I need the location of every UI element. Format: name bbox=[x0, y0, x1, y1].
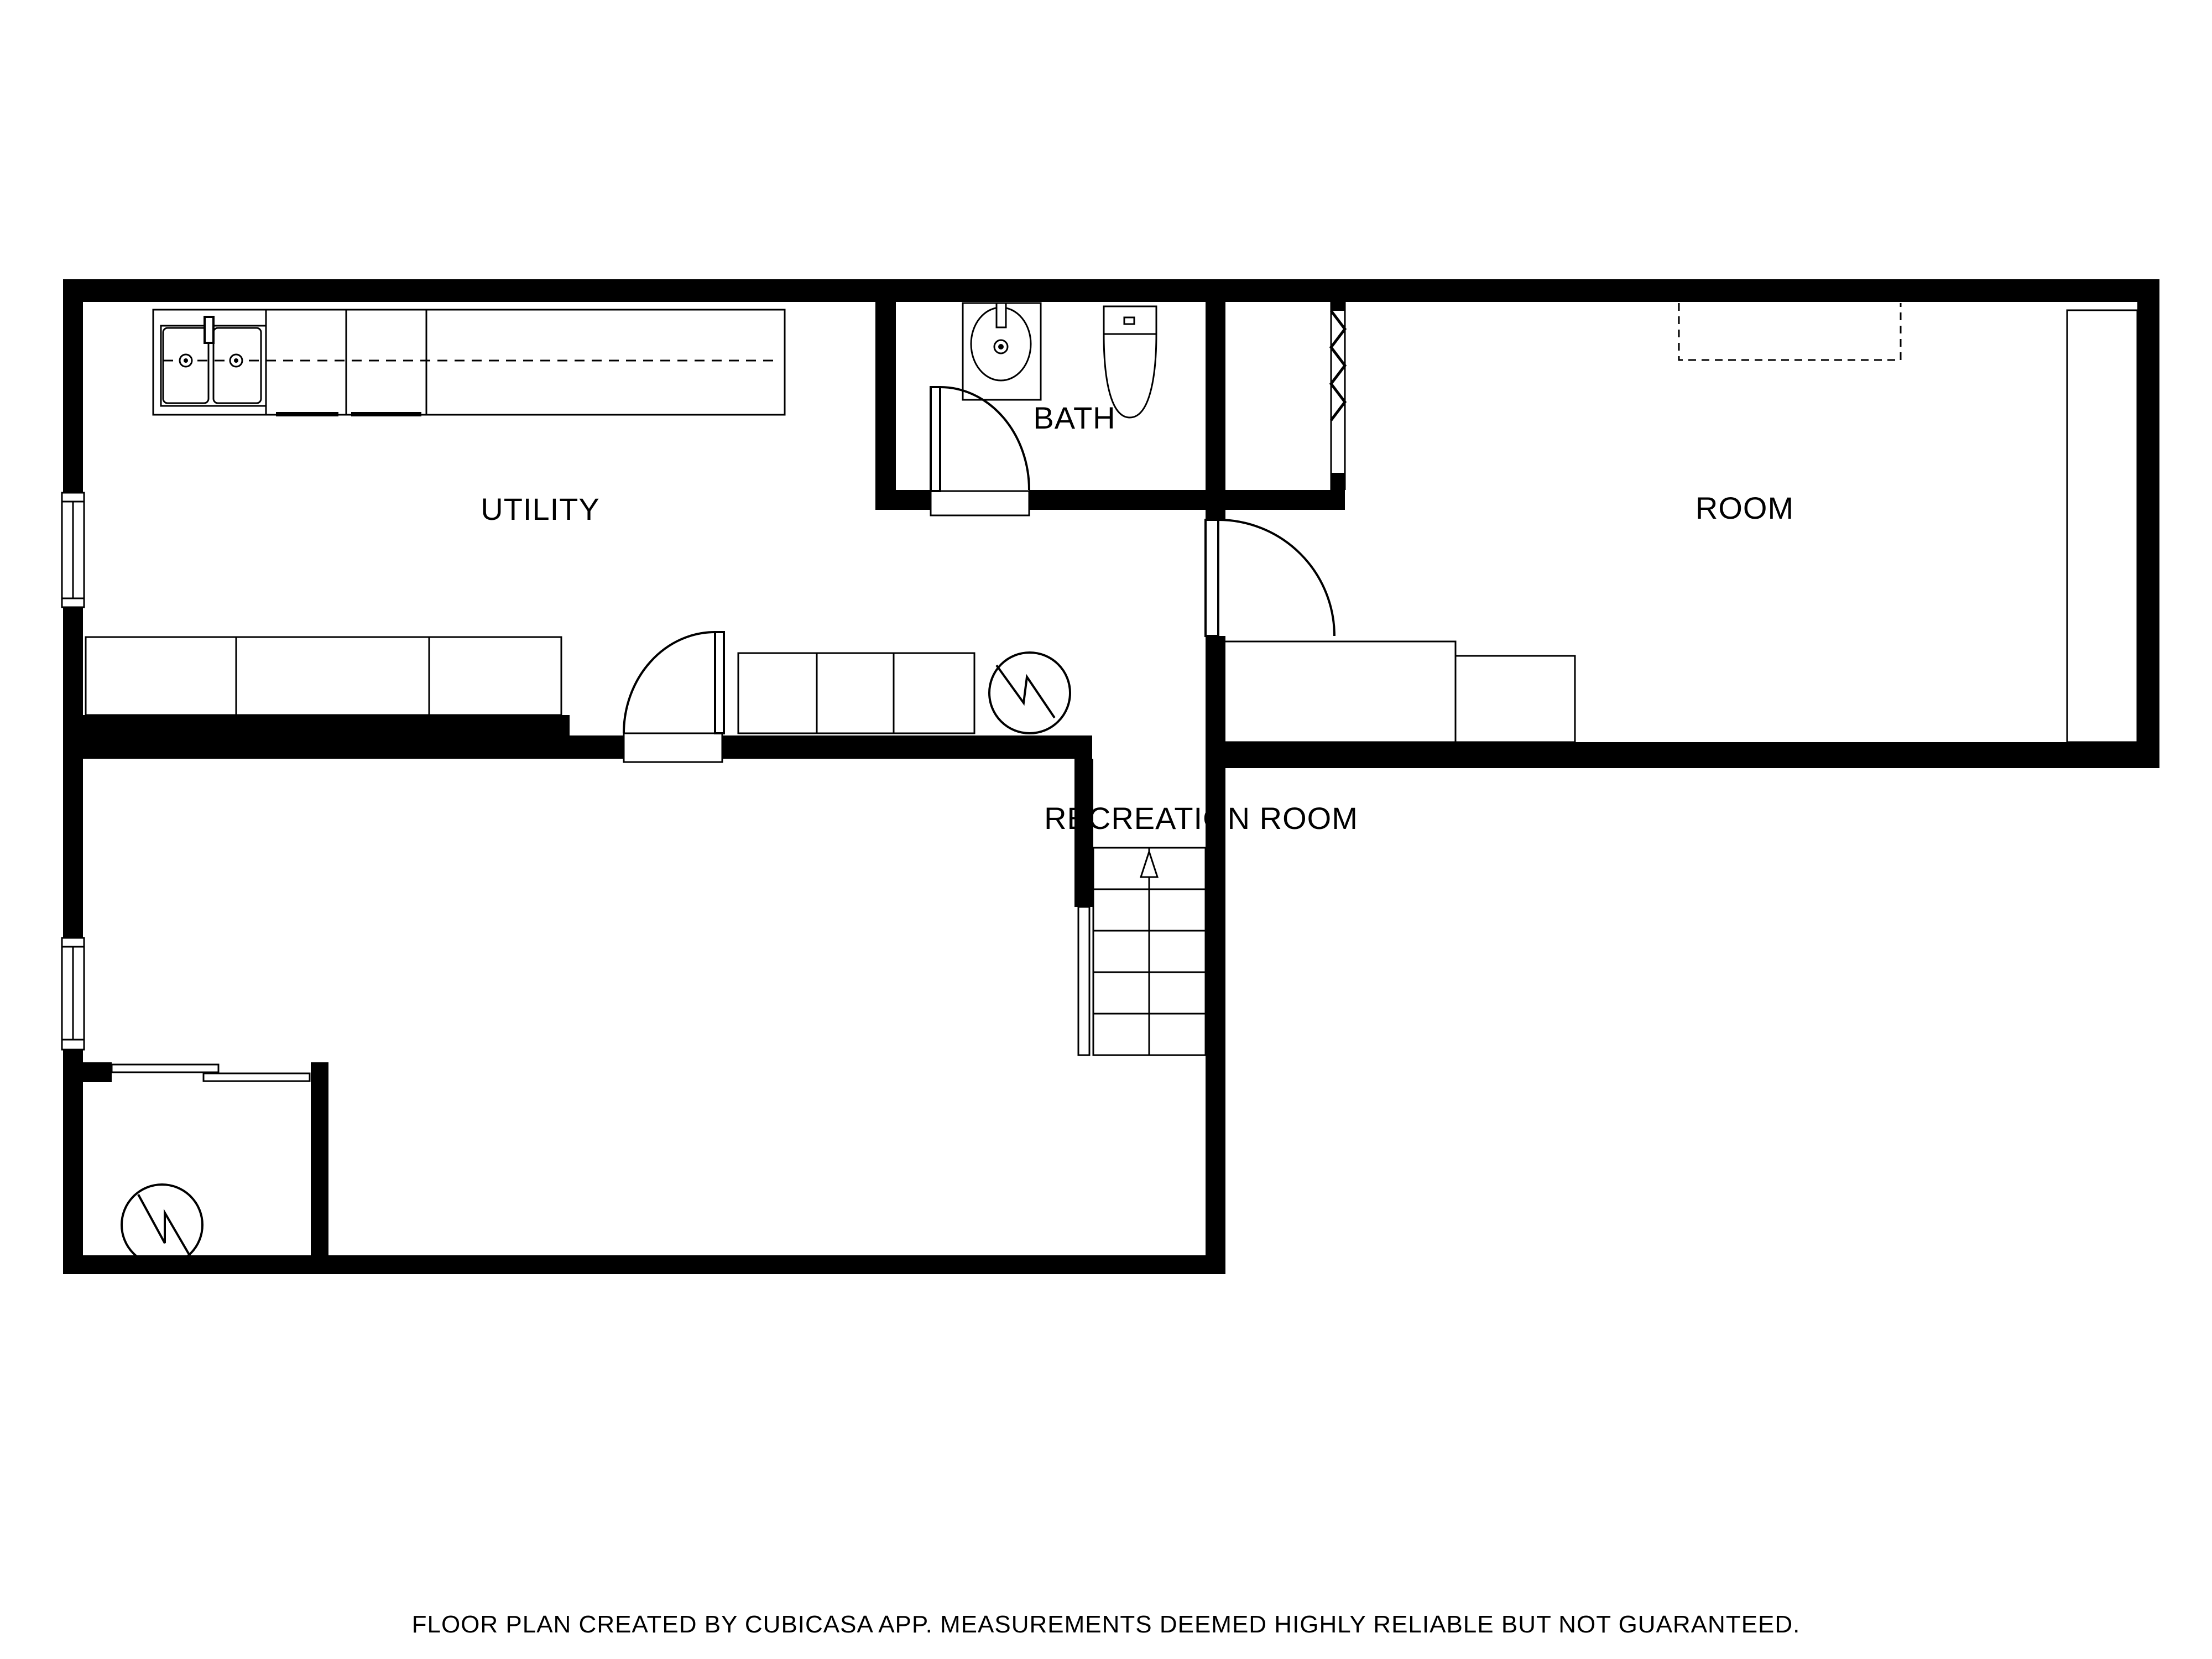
wall-recreation-bottom bbox=[63, 1255, 1225, 1274]
wall-closet-right bbox=[311, 1062, 328, 1255]
wall-mid-vertical-lower bbox=[1206, 636, 1225, 1274]
caption: FLOOR PLAN CREATED BY CUBICASA APP. MEAS… bbox=[412, 1611, 1801, 1638]
wall-left bbox=[63, 279, 83, 1274]
wall-bath-bottom-right bbox=[1029, 490, 1345, 510]
wall-utility-bottom-mid bbox=[570, 735, 624, 759]
wall-mid-vertical-upper bbox=[1206, 302, 1225, 520]
window-icon bbox=[62, 493, 84, 607]
wall-bath-left bbox=[875, 302, 896, 490]
room-label: ROOM bbox=[1695, 491, 1794, 525]
counter-tick-left bbox=[276, 412, 338, 416]
wall-room-bottom bbox=[1225, 742, 2159, 768]
closet-water-heater-icon bbox=[122, 1185, 202, 1265]
window-icon bbox=[62, 938, 84, 1050]
wall-closet-top bbox=[83, 1062, 112, 1082]
counter-tick-right bbox=[351, 412, 421, 416]
bed bbox=[1219, 641, 1455, 742]
bath-sink-icon bbox=[963, 303, 1041, 400]
floor-plan-canvas: UTILITY BATH ROOM RECREATION ROOM bbox=[0, 0, 2212, 1659]
utility-cabinet-row bbox=[738, 653, 974, 733]
water-heater-icon bbox=[989, 653, 1070, 733]
wall-right bbox=[2137, 279, 2159, 768]
utility-label: UTILITY bbox=[481, 492, 599, 526]
floor-plan-page: UTILITY BATH ROOM RECREATION ROOM bbox=[0, 0, 2212, 1659]
nightstand bbox=[1455, 656, 1575, 742]
room-side-counter bbox=[2067, 310, 2137, 742]
wall-stair-stub bbox=[1074, 759, 1093, 907]
utility-couch-row bbox=[86, 637, 561, 715]
wall-opening-top-stub bbox=[1331, 302, 1345, 311]
stair-handrail bbox=[1078, 907, 1089, 1055]
wall-utility-bottom-left bbox=[63, 715, 570, 759]
wall-top bbox=[63, 279, 2159, 302]
wall-opening-bottom-stub bbox=[1331, 473, 1345, 490]
wall-bath-bottom-left bbox=[875, 490, 931, 510]
wall-utility-bottom-right bbox=[722, 735, 1092, 759]
bath-label: BATH bbox=[1033, 400, 1115, 435]
